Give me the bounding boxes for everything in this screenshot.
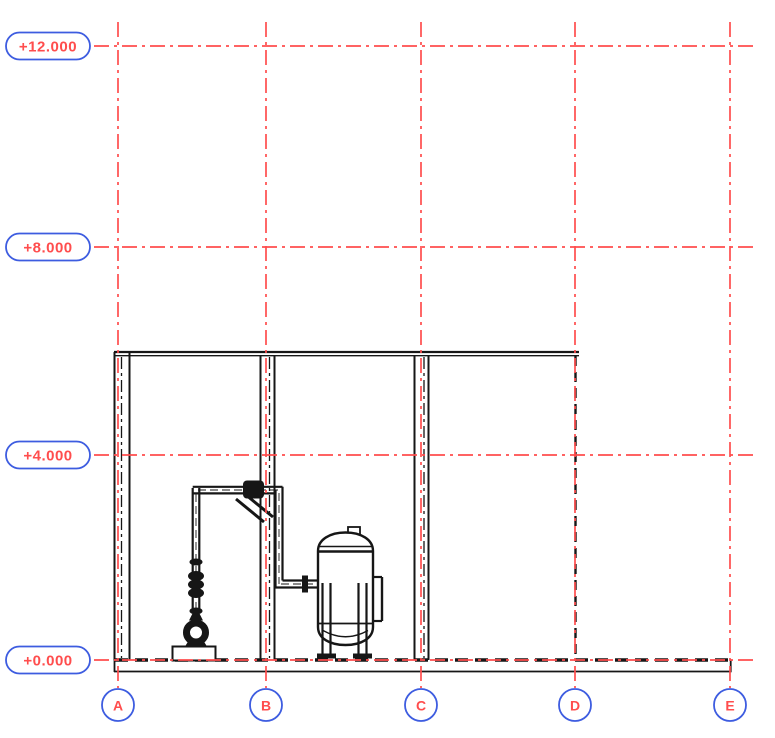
vessel [317,527,382,659]
pipe-flange-lower [190,608,203,615]
column-bubble-label: A [113,698,123,714]
level-label: +8.000 [23,240,72,257]
column-bubble-label: E [725,698,734,714]
vessel-inlet-flange [302,576,308,593]
building-geometry [114,352,732,672]
vessel-side-nozzle [373,577,382,621]
column-bubble-label: C [416,698,426,714]
column-bubble-label: D [570,698,580,714]
roof-line [114,352,579,356]
pump-and-piping [173,481,318,661]
vessel-legs [317,583,372,659]
wall-column-a [115,352,130,660]
level-label: +4.000 [23,448,72,465]
column-bubble-label: B [261,698,271,714]
valve-bobbin [188,588,204,598]
elevation-drawing-canvas: +12.000+8.000+4.000+0.000ABCDE [0,0,775,738]
pump-gland [189,614,203,621]
pump-casing [187,623,206,642]
pipe-flange-upper [190,559,203,566]
level-label: +0.000 [23,653,72,670]
grid-markers: +12.000+8.000+4.000+0.000ABCDE [6,33,746,722]
pump-base [173,647,216,661]
cad-elevation-svg: +12.000+8.000+4.000+0.000ABCDE [0,0,775,738]
level-label: +12.000 [19,39,77,56]
